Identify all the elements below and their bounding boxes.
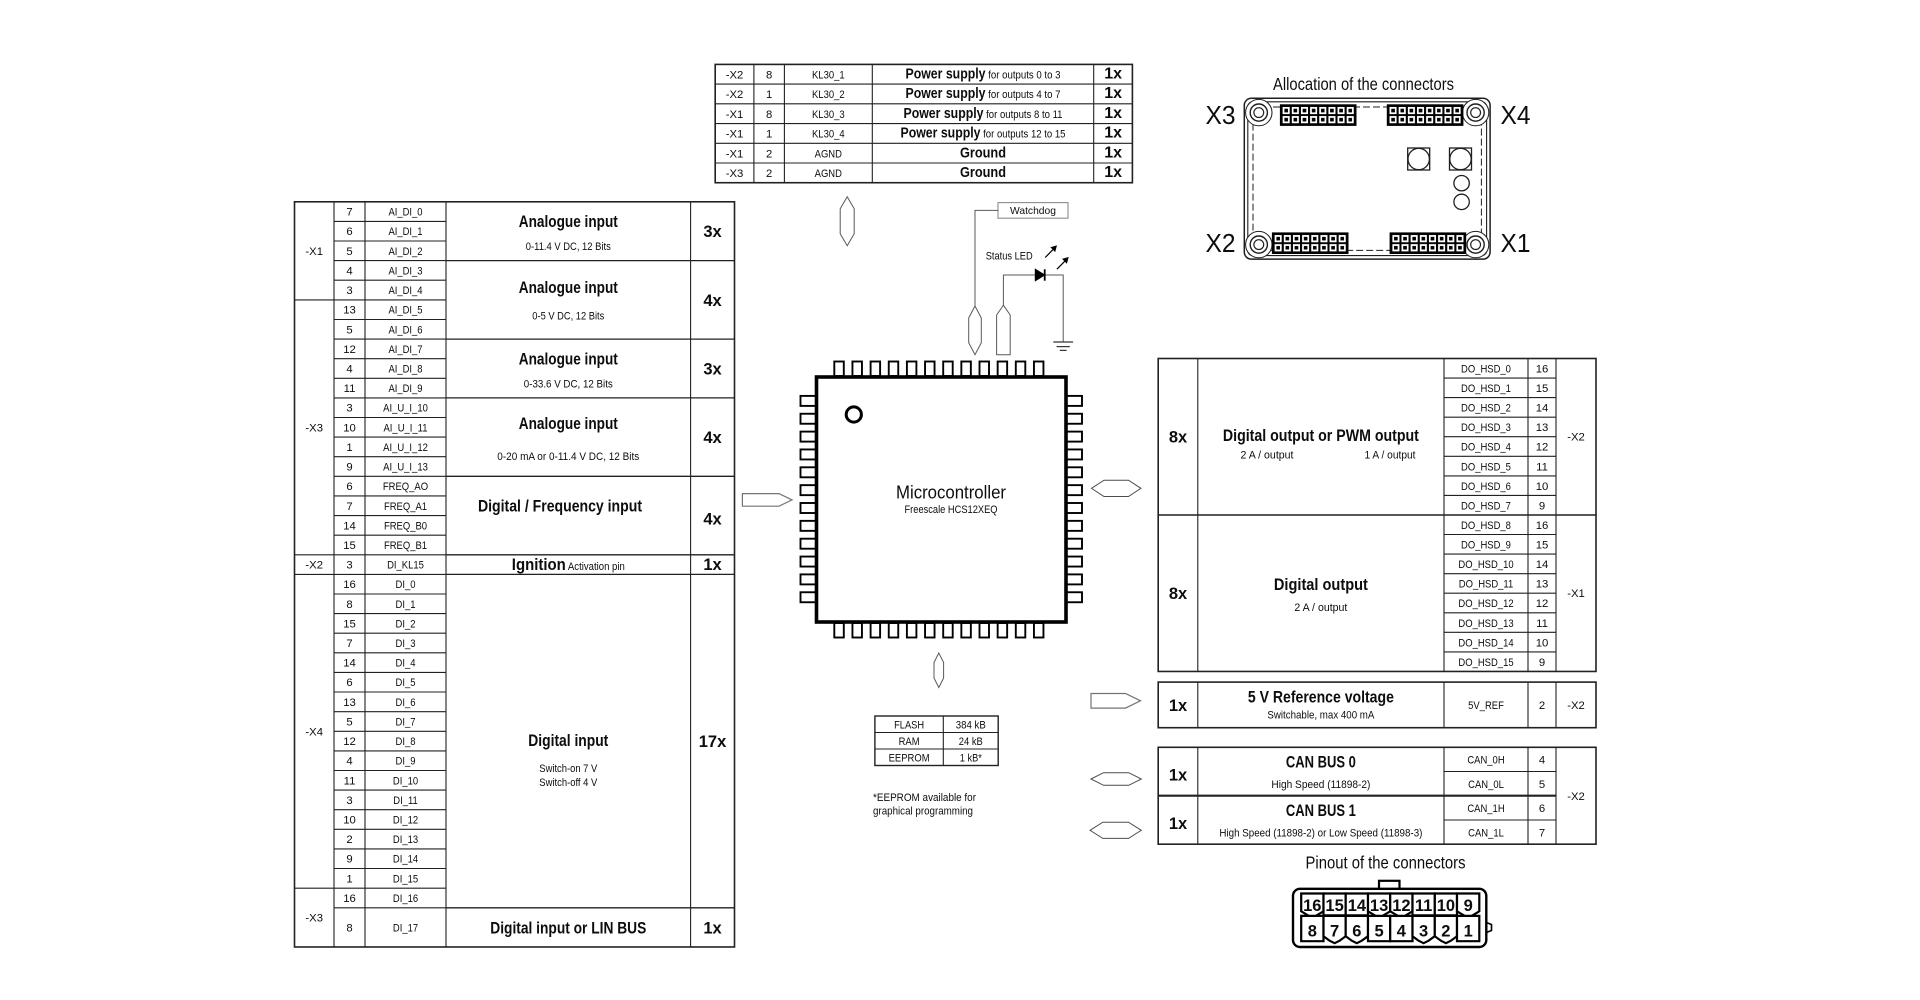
svg-text:14: 14	[343, 520, 356, 532]
svg-text:Switch-off 4 V: Switch-off 4 V	[539, 777, 598, 789]
svg-text:8: 8	[766, 109, 772, 121]
svg-text:Freescale HCS12XEQ: Freescale HCS12XEQ	[905, 504, 998, 516]
svg-text:-X1: -X1	[1567, 588, 1585, 600]
svg-text:13: 13	[343, 305, 356, 317]
svg-text:-X2: -X2	[1567, 700, 1585, 712]
svg-text:0-33.6 V DC, 12 Bits: 0-33.6 V DC, 12 Bits	[524, 379, 613, 391]
svg-text:FREQ_AO: FREQ_AO	[383, 481, 428, 493]
svg-text:DI_5: DI_5	[396, 677, 416, 689]
svg-text:4: 4	[1397, 922, 1407, 940]
svg-text:CAN BUS 0: CAN BUS 0	[1286, 754, 1356, 772]
svg-text:-X1: -X1	[726, 109, 744, 121]
svg-text:DI_15: DI_15	[393, 873, 418, 885]
svg-text:6: 6	[346, 481, 352, 493]
svg-text:14: 14	[1348, 897, 1367, 915]
svg-text:CAN_0L: CAN_0L	[1468, 779, 1504, 791]
svg-text:1x: 1x	[703, 556, 722, 574]
svg-text:AI_DI_1: AI_DI_1	[388, 226, 422, 238]
svg-text:4: 4	[346, 364, 352, 376]
svg-text:16: 16	[1536, 520, 1549, 532]
svg-text:5: 5	[346, 324, 352, 336]
svg-text:DO_HSD_6: DO_HSD_6	[1461, 481, 1511, 493]
svg-text:KL30_3: KL30_3	[812, 109, 845, 121]
svg-text:11: 11	[344, 775, 356, 787]
svg-text:8x: 8x	[1169, 585, 1188, 603]
svg-text:10: 10	[1437, 897, 1455, 915]
svg-text:5V_REF: 5V_REF	[1468, 700, 1504, 712]
svg-text:7: 7	[346, 638, 352, 650]
svg-text:10: 10	[1536, 637, 1549, 649]
svg-text:DI_KL15: DI_KL15	[387, 560, 424, 572]
svg-text:AI_U_I_12: AI_U_I_12	[383, 442, 428, 454]
svg-text:0-11.4 V DC, 12 Bits: 0-11.4 V DC, 12 Bits	[526, 241, 611, 253]
svg-text:EEPROM: EEPROM	[889, 753, 930, 765]
svg-text:6: 6	[1352, 922, 1361, 940]
svg-text:1x: 1x	[1104, 144, 1122, 161]
svg-text:24 kB: 24 kB	[959, 736, 983, 748]
svg-text:7: 7	[1539, 827, 1545, 839]
svg-text:AI_DI_9: AI_DI_9	[388, 383, 422, 395]
svg-text:AI_U_I_13: AI_U_I_13	[383, 462, 428, 474]
svg-text:5: 5	[1539, 779, 1545, 791]
svg-text:10: 10	[343, 815, 356, 827]
svg-text:3x: 3x	[703, 223, 722, 241]
svg-text:DO_HSD_14: DO_HSD_14	[1458, 637, 1513, 649]
svg-text:3: 3	[346, 285, 352, 297]
svg-text:-X2: -X2	[1567, 432, 1585, 444]
svg-text:Pinout of the connectors: Pinout of the connectors	[1306, 853, 1466, 873]
svg-text:12: 12	[343, 736, 356, 748]
svg-text:DO_HSD_11: DO_HSD_11	[1459, 579, 1514, 591]
svg-text:0-5 V DC, 12 Bits: 0-5 V DC, 12 Bits	[532, 310, 604, 322]
svg-text:5 V Reference voltage: 5 V Reference voltage	[1248, 688, 1394, 706]
svg-text:Ground: Ground	[960, 144, 1006, 161]
svg-text:-X3: -X3	[305, 422, 323, 434]
svg-text:9: 9	[1539, 500, 1545, 512]
svg-text:1: 1	[766, 129, 772, 141]
svg-text:DO_HSD_13: DO_HSD_13	[1458, 618, 1513, 630]
svg-text:X3: X3	[1206, 100, 1236, 130]
svg-text:8: 8	[346, 599, 352, 611]
svg-text:DI_9: DI_9	[396, 756, 416, 768]
svg-text:16: 16	[343, 893, 356, 905]
svg-text:graphical programming: graphical programming	[873, 806, 973, 818]
svg-text:X4: X4	[1501, 100, 1531, 130]
svg-text:14: 14	[343, 658, 356, 670]
svg-text:DI_8: DI_8	[396, 736, 416, 748]
svg-text:1: 1	[766, 89, 772, 101]
svg-text:X1: X1	[1501, 228, 1531, 258]
svg-text:Microcontroller: Microcontroller	[896, 483, 1006, 503]
svg-text:7: 7	[1330, 922, 1339, 940]
svg-text:DO_HSD_10: DO_HSD_10	[1458, 559, 1513, 571]
svg-text:Allocation of the connectors: Allocation of the connectors	[1273, 74, 1454, 94]
svg-text:Digital input: Digital input	[528, 732, 608, 750]
svg-text:DO_HSD_2: DO_HSD_2	[1461, 403, 1511, 415]
svg-text:AI_U_I_10: AI_U_I_10	[383, 403, 428, 415]
svg-text:13: 13	[1370, 897, 1388, 915]
svg-text:DO_HSD_15: DO_HSD_15	[1458, 657, 1513, 669]
svg-text:-X1: -X1	[726, 129, 744, 141]
svg-text:1x: 1x	[1104, 66, 1122, 83]
svg-text:12: 12	[1536, 442, 1549, 454]
svg-text:17x: 17x	[699, 733, 727, 751]
svg-text:-X2: -X2	[305, 560, 323, 572]
svg-text:0-20 mA or 0-11.4 V DC, 12 Bit: 0-20 mA or 0-11.4 V DC, 12 Bits	[497, 451, 639, 463]
svg-text:Watchdog: Watchdog	[1010, 205, 1056, 217]
svg-text:KL30_4: KL30_4	[812, 129, 845, 141]
svg-text:DI_2: DI_2	[396, 618, 416, 630]
svg-text:-X3: -X3	[305, 913, 323, 925]
svg-text:1x: 1x	[1169, 815, 1188, 833]
svg-text:1x: 1x	[1104, 125, 1122, 142]
svg-text:15: 15	[343, 618, 356, 630]
svg-text:13: 13	[1536, 422, 1549, 434]
svg-text:8x: 8x	[1169, 429, 1188, 447]
svg-text:-X4: -X4	[305, 726, 323, 738]
svg-text:AI_DI_3: AI_DI_3	[388, 265, 422, 277]
svg-text:DO_HSD_1: DO_HSD_1	[1461, 383, 1511, 395]
svg-text:Status LED: Status LED	[986, 251, 1033, 263]
svg-text:CAN_1L: CAN_1L	[1468, 827, 1504, 839]
svg-text:12: 12	[343, 344, 356, 356]
svg-text:AI_DI_5: AI_DI_5	[388, 305, 422, 317]
svg-text:8: 8	[346, 922, 352, 934]
svg-text:X2: X2	[1206, 228, 1236, 258]
svg-text:DO_HSD_12: DO_HSD_12	[1458, 598, 1513, 610]
svg-text:2: 2	[1441, 922, 1450, 940]
svg-text:DI_6: DI_6	[396, 697, 416, 709]
svg-text:FREQ_B1: FREQ_B1	[384, 540, 427, 552]
svg-text:Digital input or LIN BUS: Digital input or LIN BUS	[490, 919, 646, 937]
svg-text:3: 3	[346, 403, 352, 415]
svg-text:4x: 4x	[703, 511, 722, 529]
svg-text:DO_HSD_4: DO_HSD_4	[1461, 442, 1511, 454]
svg-text:9: 9	[346, 462, 352, 474]
svg-text:RAM: RAM	[899, 736, 920, 748]
svg-text:DI_11: DI_11	[393, 795, 418, 807]
svg-text:12: 12	[1392, 897, 1410, 915]
svg-text:2: 2	[346, 834, 352, 846]
svg-text:14: 14	[1536, 403, 1549, 415]
svg-text:High Speed (11898-2) or Low Sp: High Speed (11898-2) or Low Speed (11898…	[1219, 828, 1422, 840]
svg-text:16: 16	[343, 579, 356, 591]
svg-text:DI_13: DI_13	[393, 834, 418, 846]
svg-text:6: 6	[346, 226, 352, 238]
svg-text:4: 4	[1539, 755, 1545, 767]
svg-text:CAN BUS 1: CAN BUS 1	[1286, 802, 1356, 820]
svg-text:2 A / output: 2 A / output	[1241, 450, 1294, 462]
svg-text:2: 2	[766, 168, 772, 180]
svg-text:KL30_1: KL30_1	[812, 70, 845, 82]
svg-text:AGND: AGND	[815, 168, 842, 180]
svg-text:5: 5	[346, 246, 352, 258]
svg-text:AI_DI_8: AI_DI_8	[388, 364, 422, 376]
svg-text:3: 3	[1419, 922, 1428, 940]
svg-text:9: 9	[346, 854, 352, 866]
svg-text:AGND: AGND	[815, 148, 842, 160]
svg-text:6: 6	[346, 677, 352, 689]
svg-text:-X2: -X2	[726, 70, 744, 82]
svg-text:Ground: Ground	[960, 164, 1006, 181]
svg-text:15: 15	[1325, 897, 1343, 915]
svg-text:DI_14: DI_14	[393, 854, 418, 866]
svg-text:2: 2	[766, 148, 772, 160]
svg-text:4x: 4x	[703, 429, 722, 447]
svg-text:1x: 1x	[1104, 105, 1122, 122]
svg-text:-X3: -X3	[726, 168, 744, 180]
svg-text:3: 3	[346, 560, 352, 572]
svg-text:DI_4: DI_4	[396, 658, 416, 670]
svg-text:DO_HSD_8: DO_HSD_8	[1461, 520, 1511, 532]
svg-text:1x: 1x	[1104, 164, 1122, 181]
svg-text:1: 1	[1464, 922, 1473, 940]
svg-text:10: 10	[1536, 481, 1549, 493]
svg-text:3: 3	[346, 795, 352, 807]
svg-text:AI_DI_4: AI_DI_4	[388, 285, 422, 297]
svg-text:FREQ_A1: FREQ_A1	[384, 501, 427, 513]
svg-text:15: 15	[1536, 383, 1549, 395]
svg-text:1x: 1x	[703, 919, 722, 937]
svg-text:High Speed (11898-2): High Speed (11898-2)	[1271, 779, 1370, 791]
svg-text:2 A / output: 2 A / output	[1294, 602, 1347, 614]
svg-text:1: 1	[346, 873, 352, 885]
svg-text:3x: 3x	[703, 361, 722, 379]
svg-text:Analogue input: Analogue input	[519, 415, 618, 433]
svg-text:DI_12: DI_12	[393, 815, 418, 827]
svg-text:*EEPROM available for: *EEPROM available for	[873, 792, 976, 804]
svg-text:DI_7: DI_7	[396, 717, 416, 729]
svg-text:-X2: -X2	[1567, 791, 1585, 803]
svg-text:11: 11	[1415, 897, 1432, 915]
svg-text:CAN_1H: CAN_1H	[1467, 803, 1504, 815]
svg-text:Switchable, max 400 mA: Switchable, max 400 mA	[1267, 709, 1375, 721]
svg-text:8: 8	[1308, 922, 1317, 940]
svg-text:FREQ_B0: FREQ_B0	[384, 520, 427, 532]
svg-text:9: 9	[1464, 897, 1473, 915]
svg-text:DO_HSD_0: DO_HSD_0	[1461, 364, 1511, 376]
svg-text:Digital output or PWM output: Digital output or PWM output	[1223, 427, 1419, 445]
svg-text:1: 1	[346, 442, 352, 454]
svg-text:Analogue input: Analogue input	[519, 351, 618, 369]
svg-text:12: 12	[1536, 598, 1549, 610]
svg-text:11: 11	[344, 383, 356, 395]
svg-text:AI_U_I_11: AI_U_I_11	[384, 422, 428, 434]
svg-text:1x: 1x	[1104, 85, 1122, 102]
svg-text:AI_DI_2: AI_DI_2	[388, 246, 422, 258]
svg-text:11: 11	[1536, 461, 1548, 473]
svg-text:5: 5	[346, 717, 352, 729]
svg-text:Analogue input: Analogue input	[519, 279, 618, 297]
svg-text:DI_16: DI_16	[393, 893, 418, 905]
svg-text:AI_DI_7: AI_DI_7	[388, 344, 422, 356]
svg-text:-X2: -X2	[726, 89, 744, 101]
svg-text:DI_17: DI_17	[393, 922, 418, 934]
svg-text:6: 6	[1539, 803, 1545, 815]
svg-text:KL30_2: KL30_2	[812, 89, 845, 101]
svg-text:9: 9	[1539, 657, 1545, 669]
svg-text:1x: 1x	[1169, 767, 1188, 785]
svg-text:1x: 1x	[1169, 697, 1188, 715]
svg-text:15: 15	[343, 540, 356, 552]
svg-text:5: 5	[1375, 922, 1384, 940]
svg-text:DI_10: DI_10	[393, 775, 418, 787]
svg-text:13: 13	[1536, 579, 1549, 591]
svg-text:7: 7	[346, 501, 352, 513]
svg-text:4: 4	[346, 756, 352, 768]
svg-text:4x: 4x	[703, 292, 722, 310]
svg-text:1 A / output: 1 A / output	[1365, 450, 1416, 462]
svg-text:16: 16	[1303, 897, 1321, 915]
svg-text:7: 7	[346, 207, 352, 219]
svg-text:4: 4	[346, 265, 352, 277]
svg-text:DO_HSD_9: DO_HSD_9	[1461, 540, 1511, 552]
svg-text:CAN_0H: CAN_0H	[1467, 755, 1504, 767]
svg-text:14: 14	[1536, 559, 1549, 571]
svg-text:-X1: -X1	[726, 148, 744, 160]
svg-text:Digital / Frequency input: Digital / Frequency input	[478, 498, 642, 516]
svg-text:10: 10	[343, 422, 356, 434]
svg-text:DI_3: DI_3	[396, 638, 416, 650]
svg-text:AI_DI_0: AI_DI_0	[388, 207, 422, 219]
svg-text:Analogue input: Analogue input	[519, 213, 618, 231]
svg-text:15: 15	[1536, 540, 1549, 552]
svg-text:-X1: -X1	[305, 246, 323, 258]
svg-text:384 kB: 384 kB	[956, 720, 986, 732]
svg-text:8: 8	[766, 70, 772, 82]
svg-text:FLASH: FLASH	[894, 720, 924, 732]
svg-text:AI_DI_6: AI_DI_6	[388, 324, 422, 336]
svg-text:16: 16	[1536, 364, 1549, 376]
svg-text:2: 2	[1539, 700, 1545, 712]
svg-text:DO_HSD_5: DO_HSD_5	[1461, 461, 1511, 473]
svg-text:13: 13	[343, 697, 356, 709]
svg-text:Switch-on 7 V: Switch-on 7 V	[539, 763, 598, 775]
svg-text:DI_0: DI_0	[396, 579, 416, 591]
svg-text:DO_HSD_3: DO_HSD_3	[1461, 422, 1511, 434]
svg-text:1 kB*: 1 kB*	[960, 753, 983, 765]
svg-text:DI_1: DI_1	[396, 599, 416, 611]
svg-text:11: 11	[1536, 618, 1548, 630]
svg-text:DO_HSD_7: DO_HSD_7	[1461, 500, 1511, 512]
svg-text:Digital output: Digital output	[1274, 576, 1368, 594]
